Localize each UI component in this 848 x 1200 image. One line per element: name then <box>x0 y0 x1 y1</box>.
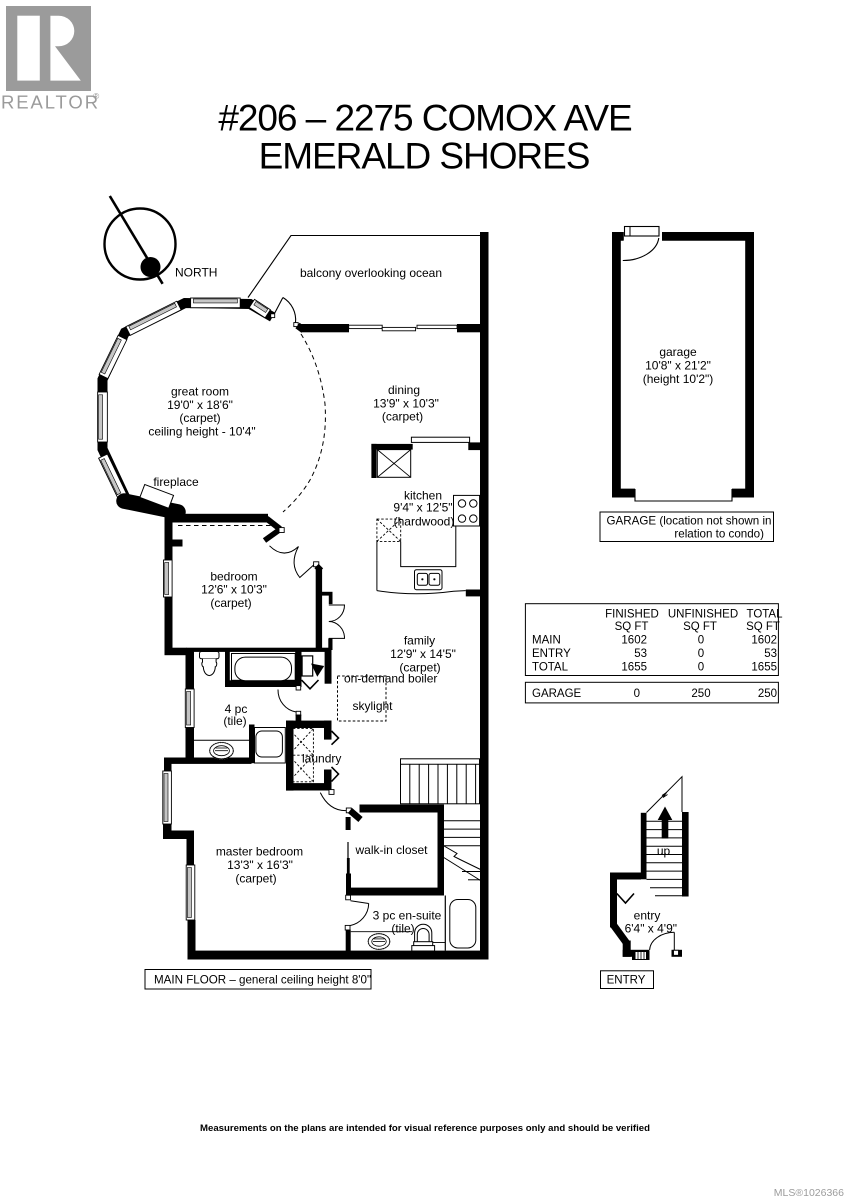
svg-text:FINISHED: FINISHED <box>605 609 659 621</box>
svg-text:bedroom: bedroom <box>210 570 257 584</box>
svg-text:laundry: laundry <box>302 752 341 766</box>
svg-text:entry: entry <box>634 909 661 923</box>
svg-text:3 pc en-suite: 3 pc en-suite <box>373 909 442 923</box>
svg-text:53: 53 <box>764 648 777 660</box>
svg-text:(carpet): (carpet) <box>399 661 440 675</box>
svg-text:(hardwood): (hardwood) <box>394 515 455 529</box>
svg-text:(carpet): (carpet) <box>235 872 276 886</box>
svg-text:REALTOR: REALTOR <box>1 92 100 113</box>
svg-text:250: 250 <box>691 688 710 700</box>
svg-text:13'3" x 16'3": 13'3" x 16'3" <box>227 858 293 872</box>
svg-text:MAIN: MAIN <box>532 635 561 647</box>
svg-text:12'6" x 10'3": 12'6" x 10'3" <box>201 583 267 597</box>
svg-text:ENTRY: ENTRY <box>532 648 571 660</box>
svg-text:(carpet): (carpet) <box>382 410 423 424</box>
svg-text:SQ FT: SQ FT <box>615 621 649 633</box>
svg-text:garage: garage <box>659 345 697 359</box>
svg-text:0: 0 <box>698 662 704 674</box>
svg-text:TOTAL: TOTAL <box>532 662 569 674</box>
svg-text:MLS®1026366: MLS®1026366 <box>774 1187 844 1199</box>
svg-text:UNFINISHED: UNFINISHED <box>668 609 738 621</box>
svg-text:1655: 1655 <box>751 662 777 674</box>
svg-text:master bedroom: master bedroom <box>216 845 303 859</box>
svg-text:GARAGE: GARAGE <box>532 688 582 700</box>
svg-text:walk-in closet: walk-in closet <box>354 843 428 857</box>
svg-text:53: 53 <box>634 648 647 660</box>
svg-text:1655: 1655 <box>621 662 647 674</box>
svg-text:6'4" x 4'9": 6'4" x 4'9" <box>625 922 677 936</box>
svg-text:10'8" x 21'2": 10'8" x 21'2" <box>645 359 711 373</box>
svg-text:dining: dining <box>388 383 420 397</box>
svg-text:0: 0 <box>698 635 704 647</box>
svg-text:19'0" x 18'6": 19'0" x 18'6" <box>167 398 233 412</box>
svg-text:skylight: skylight <box>352 699 393 713</box>
svg-text:ENTRY: ENTRY <box>607 975 646 987</box>
svg-text:up: up <box>657 844 671 858</box>
svg-text:EMERALD SHORES: EMERALD SHORES <box>259 136 590 177</box>
svg-text:NORTH: NORTH <box>175 266 217 280</box>
svg-text:1602: 1602 <box>621 635 647 647</box>
svg-text:Measurements on the plans are: Measurements on the plans are intended f… <box>200 1123 650 1134</box>
svg-text:GARAGE (location not shown in: GARAGE (location not shown in <box>607 515 772 528</box>
svg-text:MAIN FLOOR – general ceiling h: MAIN FLOOR – general ceiling height 8'0" <box>154 974 371 987</box>
svg-text:®: ® <box>93 91 100 101</box>
svg-text:TOTAL: TOTAL <box>747 609 784 621</box>
svg-text:SQ FT: SQ FT <box>683 621 717 633</box>
svg-text:0: 0 <box>634 688 640 700</box>
svg-text:9'4" x 12'5": 9'4" x 12'5" <box>393 501 452 515</box>
svg-text:(height 10'2"): (height 10'2") <box>643 372 714 386</box>
svg-text:(carpet): (carpet) <box>210 596 251 610</box>
svg-text:ceiling height - 10'4": ceiling height - 10'4" <box>148 424 255 438</box>
svg-text:250: 250 <box>758 688 777 700</box>
svg-text:fireplace: fireplace <box>153 475 199 489</box>
svg-text:13'9" x 10'3": 13'9" x 10'3" <box>373 396 439 410</box>
svg-text:(carpet): (carpet) <box>179 411 220 425</box>
svg-text:balcony overlooking ocean: balcony overlooking ocean <box>300 266 442 280</box>
svg-text:1602: 1602 <box>751 635 777 647</box>
svg-text:relation to condo): relation to condo) <box>674 528 764 541</box>
svg-text:12'9" x 14'5": 12'9" x 14'5" <box>390 647 456 661</box>
svg-text:SQ FT: SQ FT <box>746 621 780 633</box>
svg-text:#206 – 2275 COMOX AVE: #206 – 2275 COMOX AVE <box>218 98 632 139</box>
svg-text:great room: great room <box>171 385 229 399</box>
svg-text:family: family <box>404 634 435 648</box>
svg-text:(tile): (tile) <box>391 922 414 936</box>
svg-text:(tile): (tile) <box>223 714 246 728</box>
svg-text:0: 0 <box>698 648 704 660</box>
